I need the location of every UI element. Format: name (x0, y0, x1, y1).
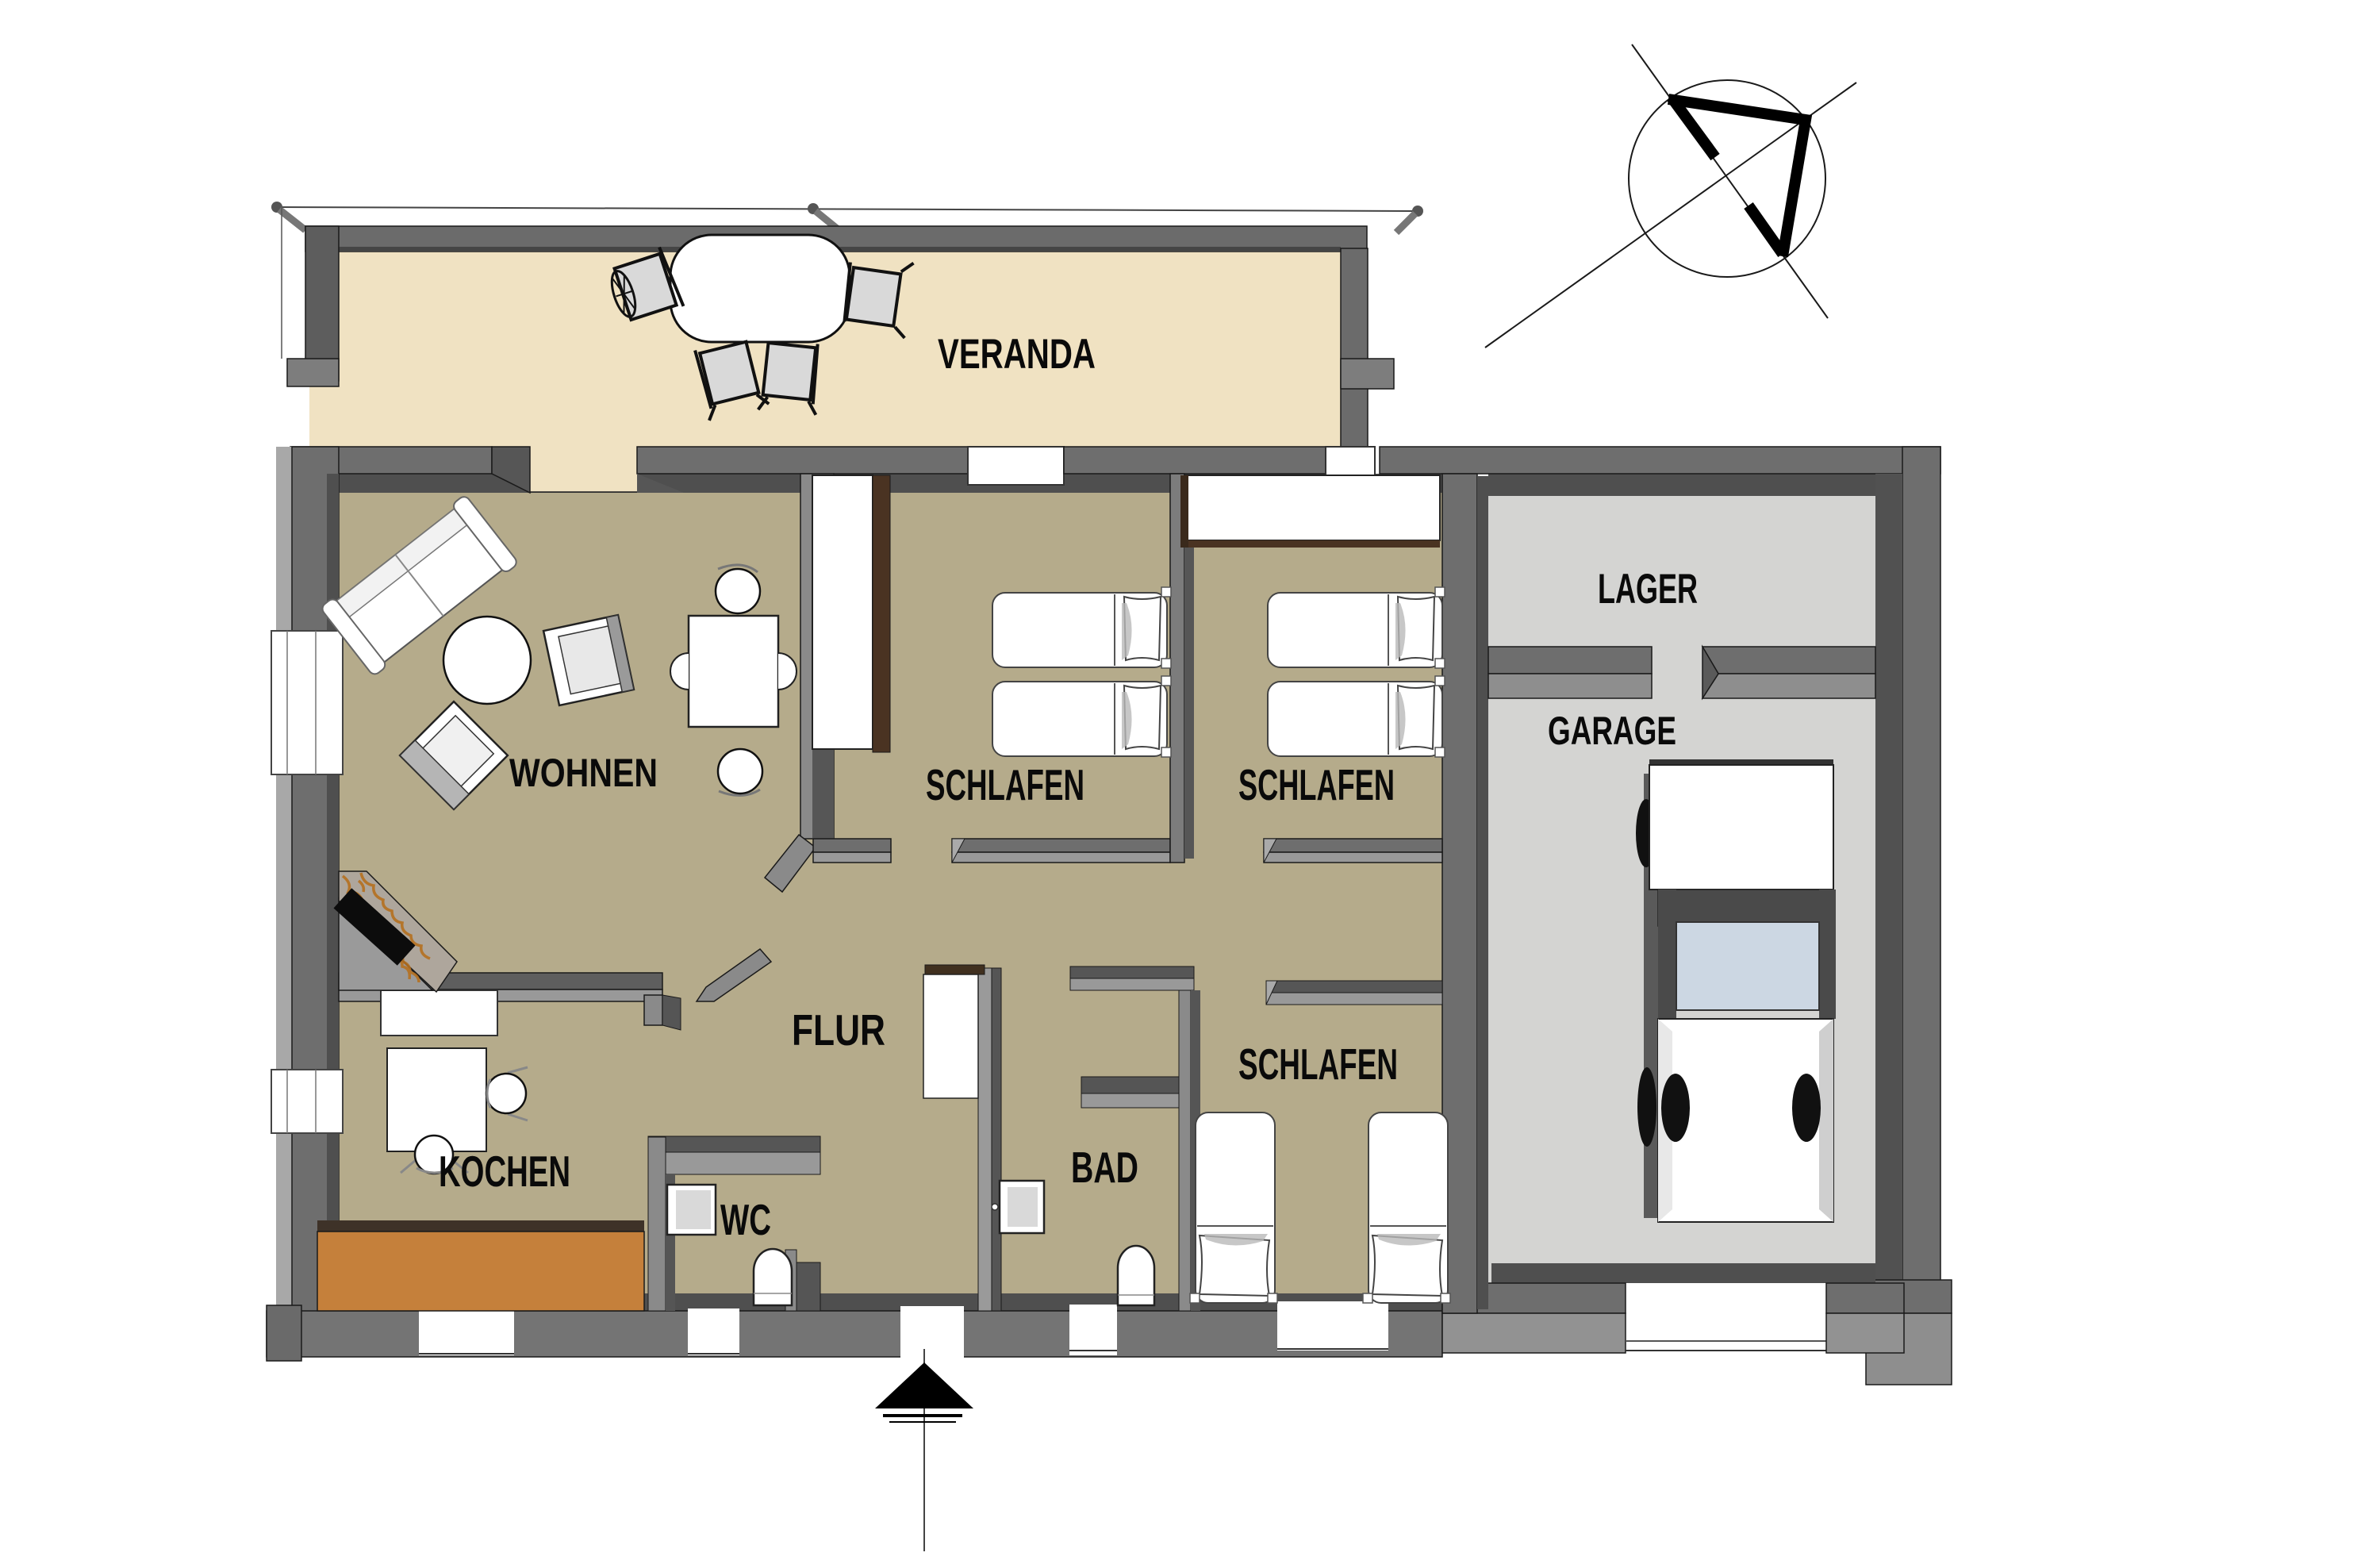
svg-text:SCHLAFEN: SCHLAFEN (926, 760, 1084, 809)
svg-text:BAD: BAD (1071, 1143, 1138, 1192)
svg-text:WC: WC (720, 1195, 771, 1244)
svg-text:GARAGE: GARAGE (1548, 709, 1676, 753)
svg-text:SCHLAFEN: SCHLAFEN (1238, 1039, 1398, 1089)
svg-text:WOHNEN: WOHNEN (509, 751, 658, 795)
svg-text:VERANDA: VERANDA (938, 331, 1096, 378)
svg-text:FLUR: FLUR (792, 1005, 885, 1055)
svg-text:KOCHEN: KOCHEN (439, 1147, 570, 1196)
svg-text:SCHLAFEN: SCHLAFEN (1238, 760, 1395, 809)
svg-text:LAGER: LAGER (1598, 566, 1698, 613)
